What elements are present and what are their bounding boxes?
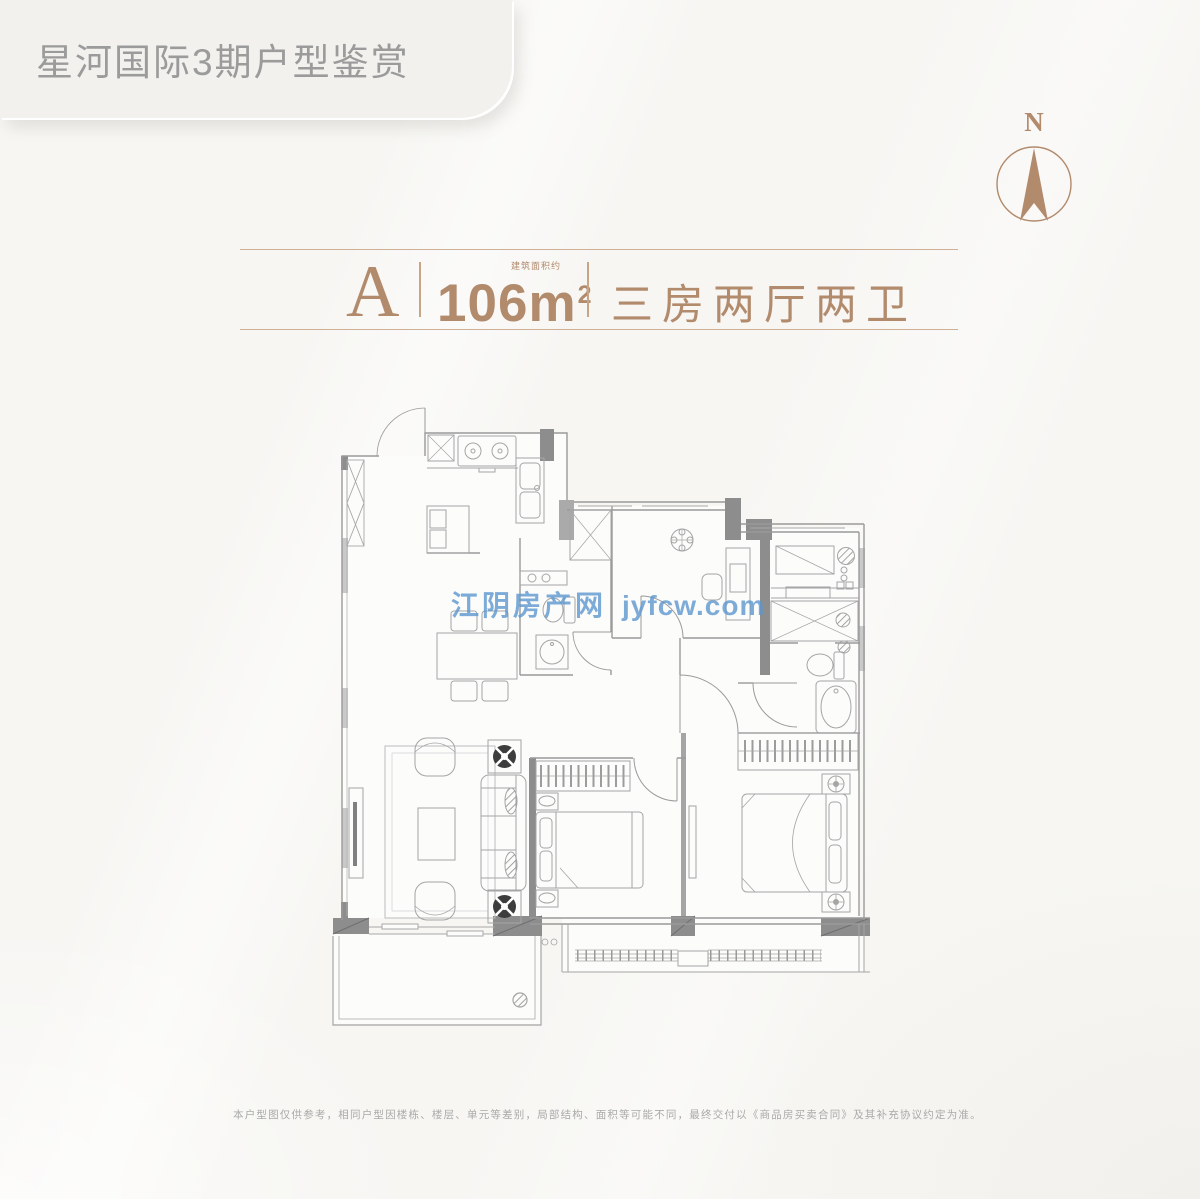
compass: N bbox=[990, 108, 1078, 233]
watermark: 江阴房产网jyfcw.com bbox=[451, 584, 765, 624]
floor-plan bbox=[330, 388, 890, 1038]
compass-icon bbox=[992, 138, 1076, 228]
floor-fills bbox=[333, 433, 864, 1024]
project-badge-title: 星河国际3期户型鉴赏 bbox=[0, 32, 410, 86]
title-divider-2 bbox=[587, 262, 589, 317]
watermark-site-name: 江阴房产网 bbox=[451, 590, 606, 621]
title-divider-1 bbox=[419, 262, 421, 317]
compass-north-label: N bbox=[990, 108, 1078, 136]
watermark-site-url: jyfcw.com bbox=[622, 590, 765, 621]
unit-letter: A bbox=[346, 250, 399, 329]
area-value: 106m2 bbox=[437, 267, 592, 332]
page: 星河国际3期户型鉴赏 N A 建筑面积约 106m2 三房两厅两卫 江阴房产网j… bbox=[0, 0, 1200, 1199]
project-badge: 星河国际3期户型鉴赏 bbox=[0, 0, 512, 118]
unit-title-block: A 建筑面积约 106m2 三房两厅两卫 bbox=[240, 249, 958, 330]
disclaimer: 本户型图仅供参考，相同户型因楼栋、楼层、单元等差别，局部结构、面积等可能不同，最… bbox=[233, 1107, 993, 1122]
entry-door bbox=[377, 408, 425, 456]
unit-layout-label: 三房两厅两卫 bbox=[611, 271, 917, 332]
